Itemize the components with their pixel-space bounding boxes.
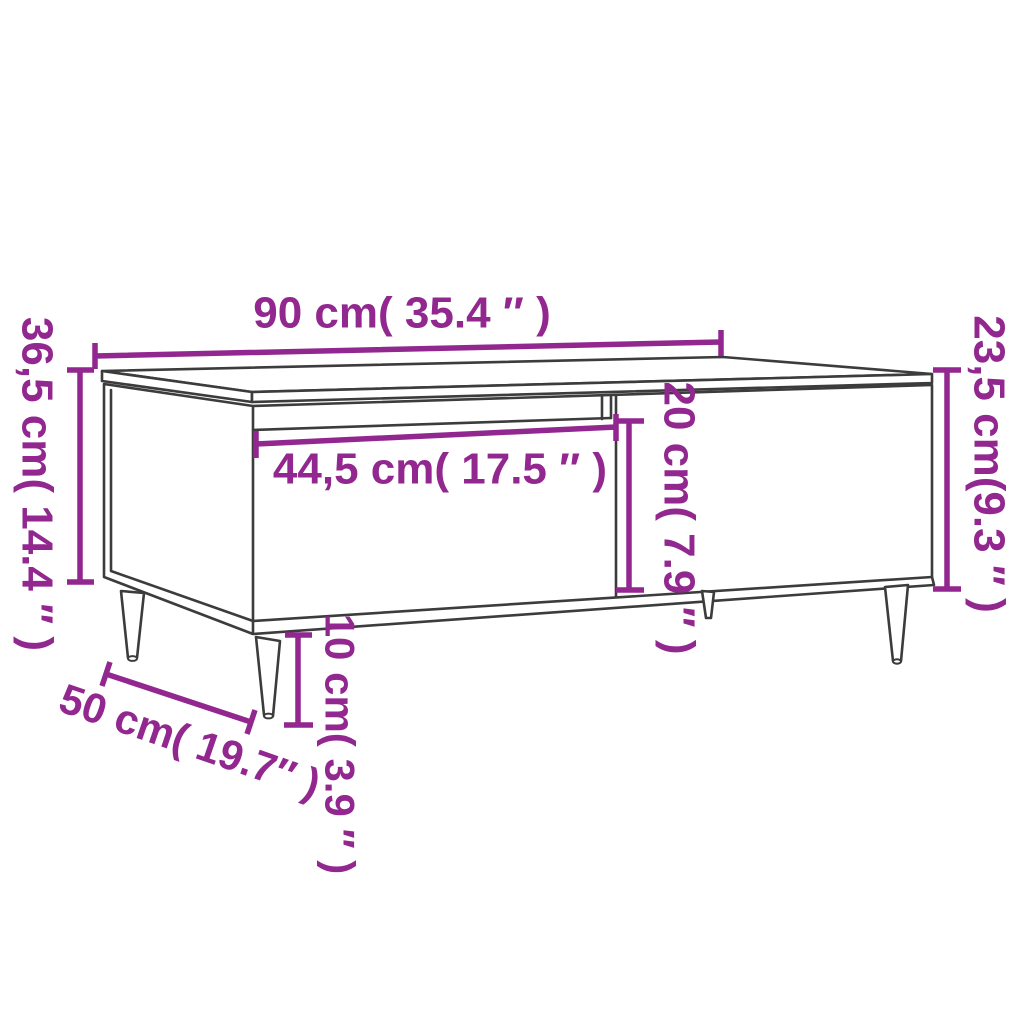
- rear-left-leg-tip: [128, 656, 137, 661]
- dimension-diagram-canvas: 90 cm( 35.4 ″ ) 36,5 cm( 14.4 ″ ) 23,5 c…: [0, 0, 1024, 1024]
- front-left-leg-tip: [264, 714, 273, 719]
- inner-height-dimension-label: 20 cm( 7.9 ″ ): [655, 382, 704, 655]
- body-height-dimension-label: 23,5 cm(9.3 ″ ): [965, 315, 1014, 612]
- front-right-leg-tip: [893, 659, 901, 663]
- drawer-width-dimension-label: 44,5 cm( 17.5 ″ ): [273, 445, 607, 494]
- leg-height-dimension-label: 10 cm( 3.9 ″ ): [317, 614, 364, 875]
- width-dimension-label: 90 cm( 35.4 ″ ): [253, 289, 550, 338]
- coffee-table-dimension-diagram: 90 cm( 35.4 ″ ) 36,5 cm( 14.4 ″ ) 23,5 c…: [0, 0, 1024, 1024]
- total-height-dimension-label: 36,5 cm( 14.4 ″ ): [13, 317, 62, 651]
